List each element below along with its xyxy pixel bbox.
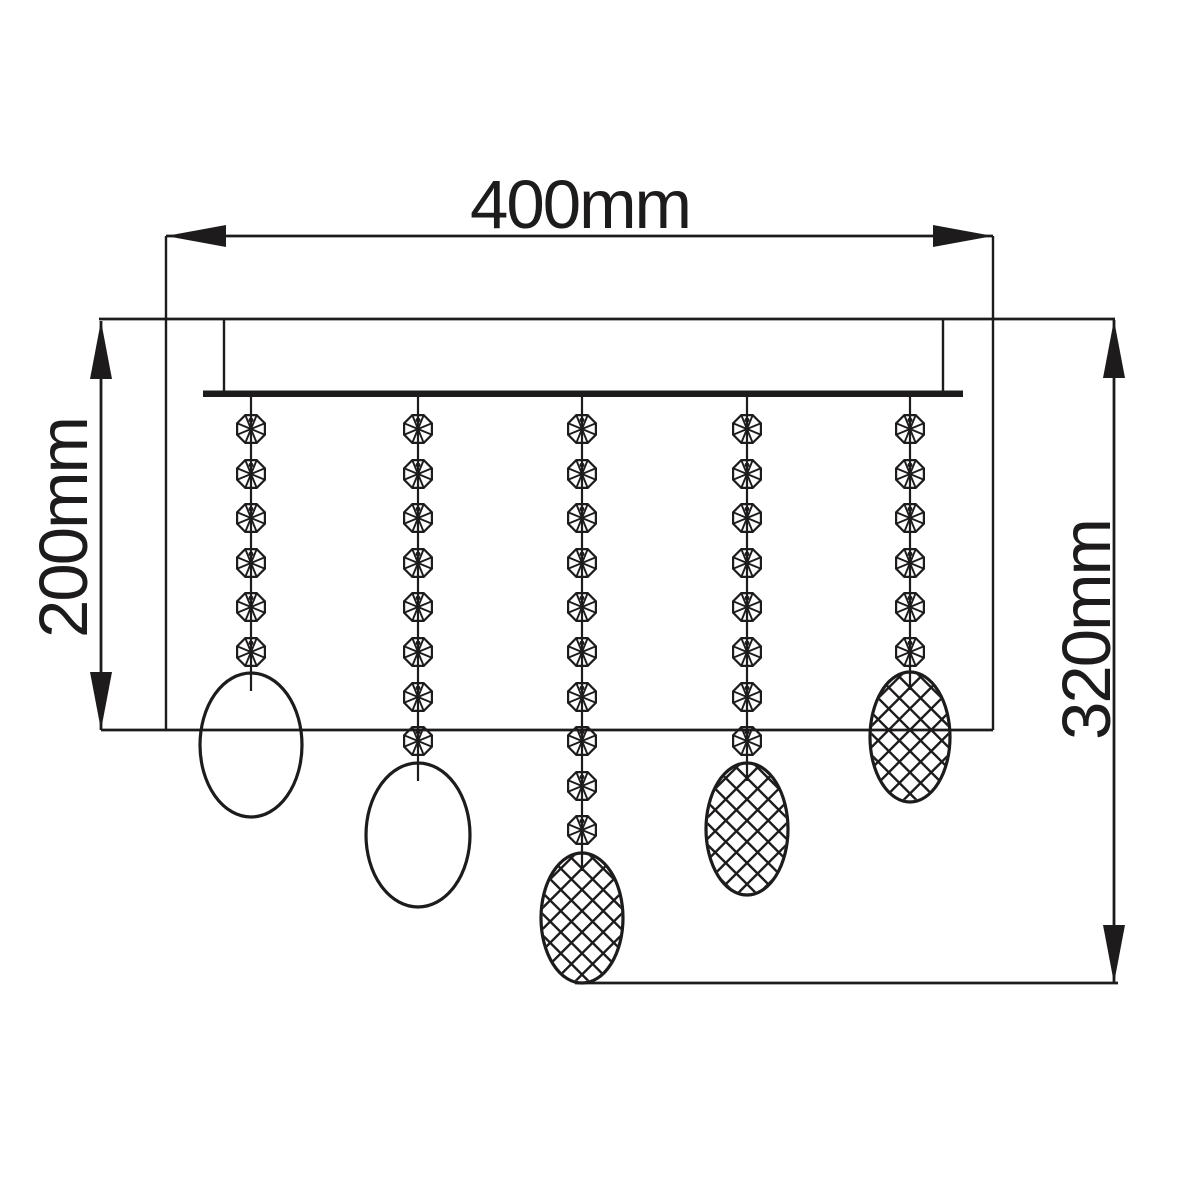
canopy-bottom-bar: [203, 391, 963, 398]
smooth-drop-pendant: [200, 673, 302, 817]
arrow-left-icon: [166, 225, 226, 247]
arrow-up-icon: [90, 321, 112, 379]
dim-drop-right-label: 320mm: [1048, 520, 1125, 740]
bead-strand: [448, 397, 717, 1045]
arrow-up-icon: [1103, 320, 1125, 378]
smooth-drop-pendant: [366, 763, 470, 907]
arrow-down-icon: [1103, 925, 1125, 983]
arrow-down-icon: [90, 672, 112, 730]
dimension-drop-right-320mm: 320mm: [1048, 320, 1125, 983]
bead-strand: [200, 397, 302, 817]
arrow-right-icon: [933, 225, 993, 247]
bead-strand: [611, 397, 883, 956]
dim-width-label: 400mm: [470, 166, 690, 243]
bead-strand: [776, 397, 1045, 864]
dim-drop-left-label: 200mm: [25, 418, 102, 638]
technical-drawing-page: 400mm 200mm 320mm: [0, 0, 1200, 1200]
bead-strand: [366, 397, 470, 907]
canopy-plate: [203, 319, 963, 397]
fixture-dimension-drawing: 400mm 200mm 320mm: [0, 0, 1200, 1200]
crystal-strands: [200, 397, 1044, 1045]
dimension-drop-left-200mm: 200mm: [25, 321, 112, 730]
